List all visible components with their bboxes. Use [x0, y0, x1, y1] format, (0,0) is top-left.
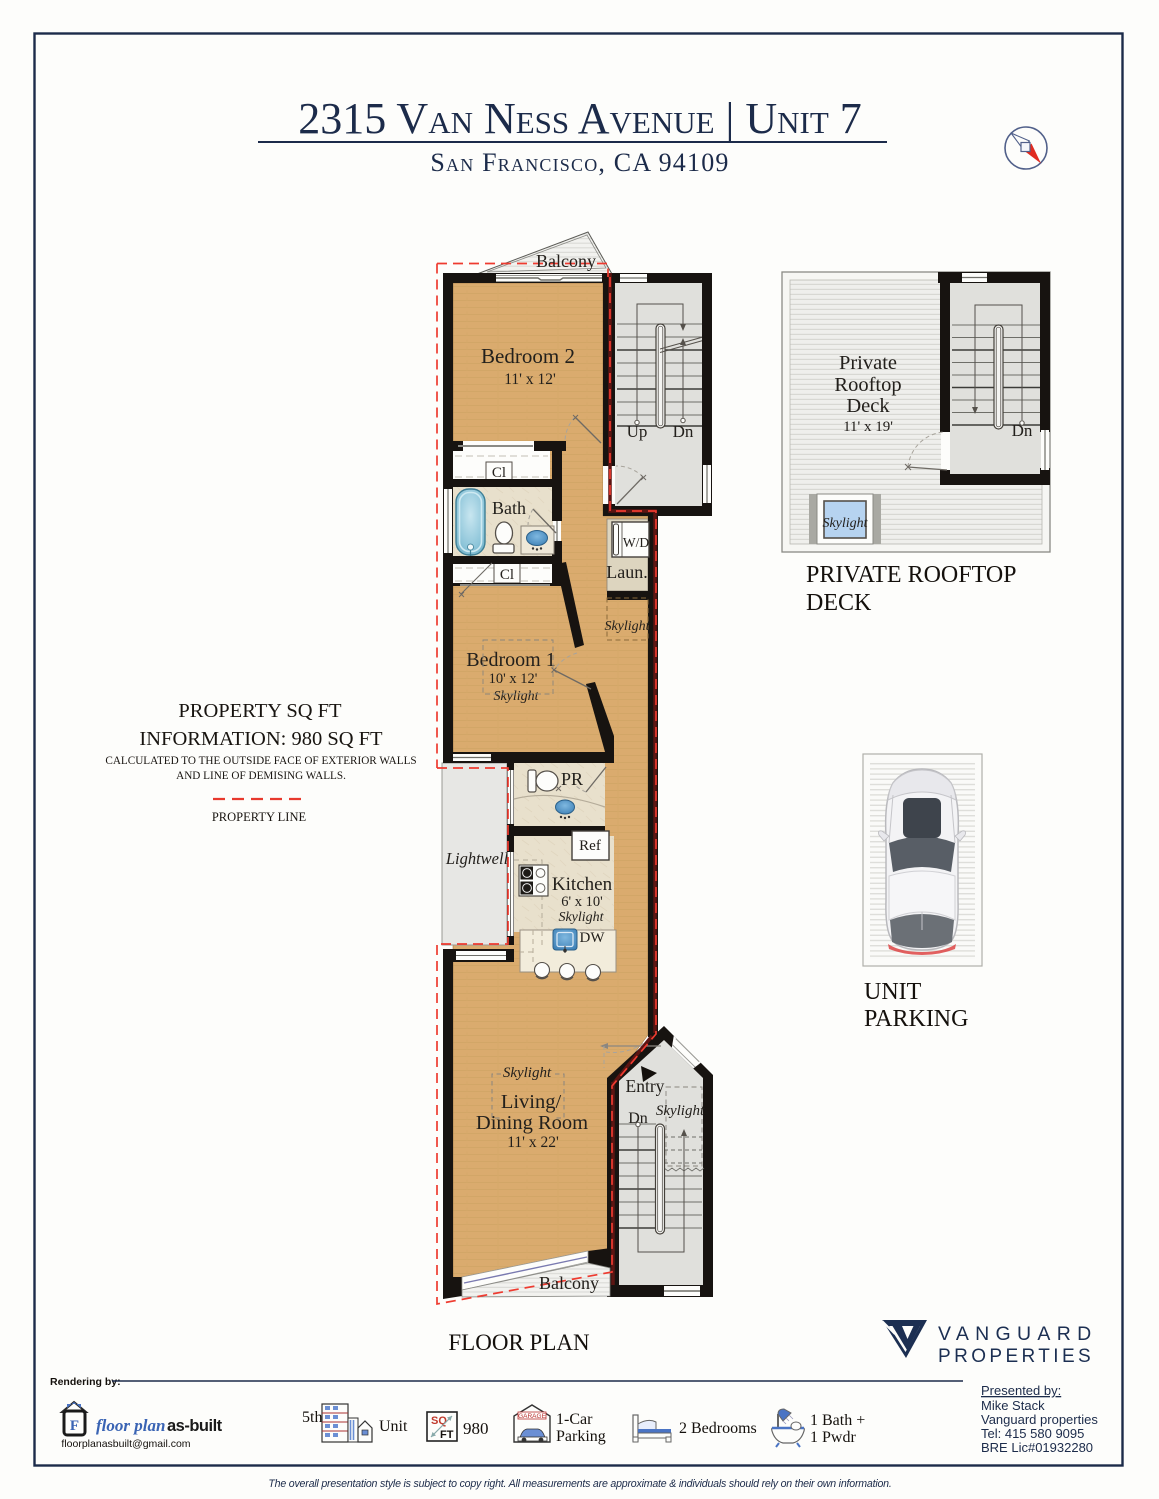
svg-text:11' x 22': 11' x 22' [507, 1134, 559, 1151]
svg-text:Rendering by:: Rendering by: [50, 1376, 121, 1388]
svg-text:980: 980 [463, 1419, 489, 1438]
svg-text:DW: DW [580, 930, 606, 946]
svg-text:11' x 12': 11' x 12' [504, 371, 556, 388]
svg-text:PROPERTY SQ FT: PROPERTY SQ FT [178, 700, 342, 722]
svg-text:INFORMATION: 980 SQ FT: INFORMATION: 980 SQ FT [139, 728, 383, 750]
svg-text:Kitchen: Kitchen [552, 874, 613, 895]
svg-text:Dn: Dn [1012, 421, 1033, 440]
svg-text:W/D: W/D [623, 535, 649, 550]
svg-text:BRE Lic#01932280: BRE Lic#01932280 [981, 1440, 1093, 1455]
svg-text:Private: Private [839, 352, 897, 374]
svg-text:Dining Room: Dining Room [476, 1112, 588, 1134]
svg-text:VANGUARD: VANGUARD [938, 1323, 1097, 1345]
svg-text:Skylight: Skylight [656, 1103, 705, 1119]
svg-text:Rooftop: Rooftop [834, 374, 901, 396]
svg-text:Up: Up [627, 422, 648, 441]
svg-text:Presented by:: Presented by: [981, 1383, 1061, 1398]
svg-text:11' x 19': 11' x 19' [843, 419, 893, 435]
svg-text:Cl: Cl [500, 567, 514, 583]
svg-text:Balcony: Balcony [536, 251, 596, 271]
svg-text:Skylight: Skylight [503, 1065, 552, 1081]
svg-text:Deck: Deck [846, 395, 890, 417]
svg-text:FT: FT [440, 1429, 454, 1441]
svg-text:SQ: SQ [431, 1415, 447, 1427]
svg-text:PR: PR [561, 769, 583, 789]
svg-text:Balcony: Balcony [539, 1273, 599, 1293]
svg-text:GARAGE: GARAGE [518, 1413, 546, 1420]
svg-text:1 Pwdr: 1 Pwdr [810, 1429, 856, 1446]
svg-text:Unit: Unit [379, 1418, 408, 1435]
svg-text:San Francisco, CA 94109: San Francisco, CA 94109 [430, 148, 729, 177]
svg-text:Skylight: Skylight [558, 910, 604, 925]
svg-text:Dn: Dn [673, 422, 694, 441]
svg-text:2 Bedrooms: 2 Bedrooms [679, 1420, 757, 1437]
svg-text:PROPERTY LINE: PROPERTY LINE [212, 810, 307, 824]
svg-text:1-Car: 1-Car [556, 1411, 593, 1428]
svg-text:Tel: 415 580 9095: Tel: 415 580 9095 [981, 1426, 1084, 1441]
svg-text:floorplanasbuilt@gmail.com: floorplanasbuilt@gmail.com [61, 1438, 190, 1450]
svg-text:2315 Van Ness Avenue | Unit 7: 2315 Van Ness Avenue | Unit 7 [298, 94, 862, 143]
svg-text:Mike Stack: Mike Stack [981, 1398, 1045, 1413]
svg-text:as-built: as-built [167, 1417, 223, 1435]
svg-text:Vanguard properties: Vanguard properties [981, 1412, 1098, 1427]
svg-text:The overall presentation style: The overall presentation style is subjec… [268, 1478, 891, 1490]
svg-text:Dn: Dn [628, 1110, 648, 1127]
svg-text:Living/: Living/ [501, 1091, 562, 1113]
svg-text:floor plan: floor plan [96, 1416, 165, 1435]
svg-text:F: F [70, 1418, 79, 1434]
svg-text:10' x 12': 10' x 12' [489, 671, 538, 687]
svg-text:PARKING: PARKING [864, 1006, 968, 1032]
svg-text:PROPERTIES: PROPERTIES [938, 1346, 1094, 1367]
svg-text:Bath: Bath [492, 498, 526, 518]
svg-text:Bedroom 1: Bedroom 1 [466, 649, 555, 671]
svg-text:CALCULATED TO THE OUTSIDE FACE: CALCULATED TO THE OUTSIDE FACE OF EXTERI… [105, 755, 416, 767]
svg-text:6' x 10': 6' x 10' [561, 894, 602, 910]
svg-text:UNIT: UNIT [864, 979, 922, 1005]
svg-text:AND LINE OF DEMISING WALLS.: AND LINE OF DEMISING WALLS. [176, 770, 346, 782]
svg-text:5th: 5th [302, 1409, 322, 1426]
svg-text:Laun.: Laun. [606, 562, 647, 582]
svg-text:Skylight: Skylight [493, 689, 539, 704]
svg-text:Parking: Parking [556, 1428, 606, 1445]
svg-text:Skylight: Skylight [822, 516, 868, 531]
svg-text:Ref: Ref [579, 838, 601, 854]
svg-text:DECK: DECK [806, 590, 872, 616]
svg-text:1 Bath +: 1 Bath + [810, 1412, 865, 1429]
svg-text:Bedroom 2: Bedroom 2 [481, 344, 575, 368]
svg-text:PRIVATE ROOFTOP: PRIVATE ROOFTOP [806, 562, 1017, 588]
svg-text:FLOOR PLAN: FLOOR PLAN [448, 1330, 590, 1355]
svg-text:Skylight: Skylight [604, 619, 650, 634]
svg-text:Cl: Cl [492, 465, 506, 481]
svg-text:Lightwell: Lightwell [445, 849, 509, 868]
